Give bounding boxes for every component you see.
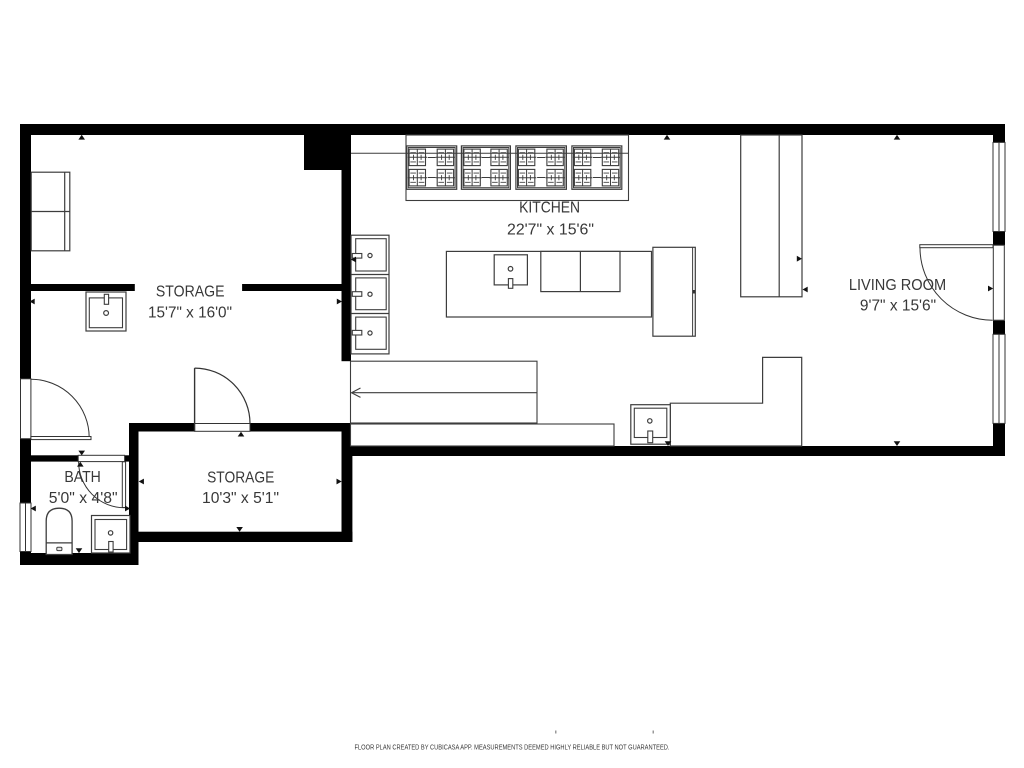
svg-text:5'0" x 4'8": 5'0" x 4'8" <box>49 490 118 507</box>
svg-text:10'3" x 5'1": 10'3" x 5'1" <box>202 490 279 507</box>
svg-text:9'7" x 15'6": 9'7" x 15'6" <box>860 297 936 314</box>
svg-text:BATH: BATH <box>64 469 101 486</box>
svg-text:FLOOR PLAN CREATED BY CUBICASA: FLOOR PLAN CREATED BY CUBICASA APP. MEAS… <box>355 743 670 752</box>
svg-text:STORAGE: STORAGE <box>207 469 274 486</box>
svg-text:15'7" x 16'0": 15'7" x 16'0" <box>148 305 232 322</box>
svg-text:STORAGE: STORAGE <box>156 283 225 300</box>
svg-text:22'7" x 15'6": 22'7" x 15'6" <box>507 221 594 238</box>
svg-text:LIVING ROOM: LIVING ROOM <box>849 277 946 294</box>
svg-text:KITCHEN: KITCHEN <box>519 200 580 217</box>
